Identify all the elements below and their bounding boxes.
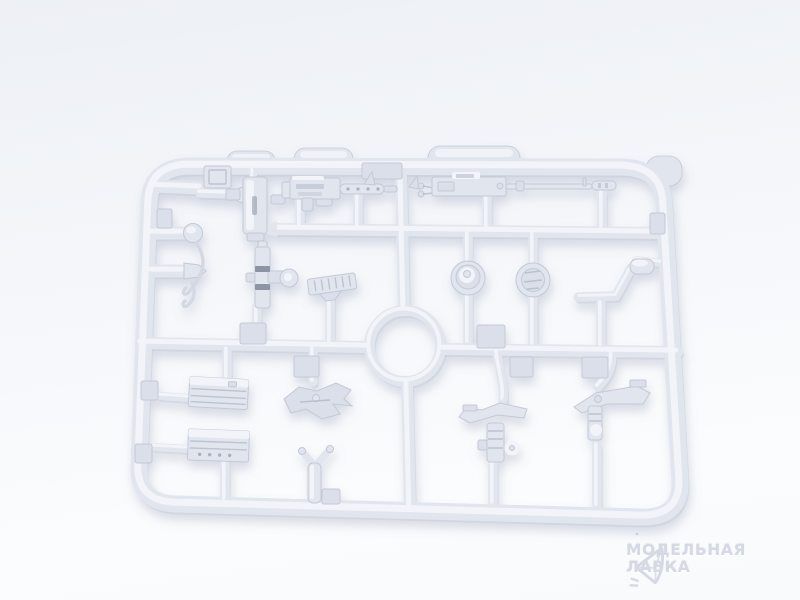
sprue-photo	[0, 0, 800, 600]
part-machine-gun-short	[271, 176, 397, 211]
photo-stage: МОДЕЛЬНАЯ ЛАВКА	[0, 0, 800, 600]
gem-logo-icon	[624, 540, 673, 592]
part-cupola-ring	[516, 263, 550, 297]
watermark: МОДЕЛЬНАЯ ЛАВКА	[626, 542, 746, 576]
dust-speck	[636, 533, 639, 536]
part-crank-handle	[578, 259, 654, 297]
part-ribbed-step-plate	[307, 273, 358, 303]
part-flat-pad-top	[362, 163, 402, 179]
part-pintle-mount-2	[574, 380, 650, 440]
part-round-hatch-dome	[451, 261, 485, 295]
part-mount-plate	[284, 383, 352, 419]
part-pintle-mount-1	[459, 403, 527, 462]
part-ammo-box-2	[187, 429, 249, 462]
part-wedge-2	[409, 176, 419, 189]
sprue	[135, 146, 682, 520]
part-gun-cradle-post	[246, 241, 298, 308]
part-periscope-housing	[243, 177, 267, 241]
part-barrel-stub-round	[184, 224, 203, 243]
part-ammo-box-1	[188, 377, 248, 410]
